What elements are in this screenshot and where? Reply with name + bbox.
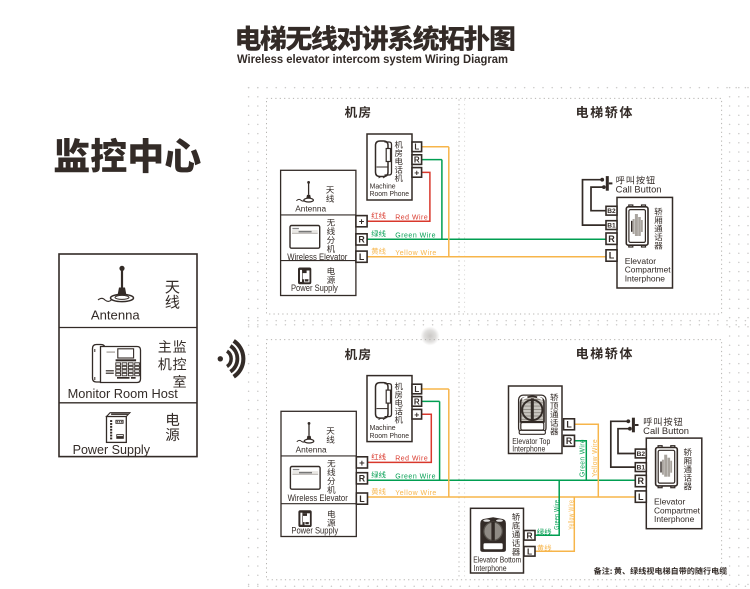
svg-text:Interphone: Interphone — [654, 514, 694, 524]
svg-text:L: L — [638, 492, 644, 502]
svg-text:B1: B1 — [607, 222, 616, 229]
svg-text:Interphone: Interphone — [625, 273, 665, 283]
svg-text:Yellow Wire: Yellow Wire — [395, 250, 437, 257]
svg-text:R: R — [359, 473, 366, 483]
svg-text:L: L — [359, 494, 365, 504]
svg-text:Red Wire: Red Wire — [395, 456, 428, 463]
svg-text:Interphone: Interphone — [474, 564, 507, 573]
svg-text:Green Wire: Green Wire — [580, 439, 587, 477]
svg-text:Wireless Elevator: Wireless Elevator — [288, 493, 348, 503]
svg-text:Green Wire: Green Wire — [395, 474, 436, 481]
svg-text:R: R — [566, 436, 573, 446]
svg-text:L: L — [609, 251, 615, 261]
svg-text:Yellow Wire: Yellow Wire — [395, 490, 437, 497]
svg-text:B2: B2 — [607, 208, 616, 215]
svg-text:+: + — [414, 409, 419, 419]
svg-text:R: R — [414, 397, 420, 406]
svg-text:R: R — [638, 476, 645, 486]
svg-text:Power Supply: Power Supply — [291, 283, 338, 293]
svg-text:Antenna: Antenna — [295, 203, 326, 213]
svg-text:Wireless elevator intercom sys: Wireless elevator intercom system Wiring… — [237, 54, 508, 66]
svg-text:Monitor Room Host: Monitor Room Host — [68, 386, 179, 401]
svg-text:L: L — [359, 252, 365, 262]
svg-text:Wireless Elevator: Wireless Elevator — [287, 252, 347, 262]
svg-text:R: R — [414, 155, 420, 164]
svg-text:Call Button: Call Button — [616, 185, 662, 195]
svg-text:Room Phone: Room Phone — [370, 431, 409, 440]
svg-text:Green Wire: Green Wire — [395, 232, 436, 239]
svg-text:+: + — [359, 217, 365, 228]
svg-text:+: + — [359, 458, 365, 469]
svg-text:Power Supply: Power Supply — [73, 442, 151, 457]
svg-text:Room Phone: Room Phone — [370, 189, 409, 198]
svg-text:Yellow Wire: Yellow Wire — [592, 439, 599, 477]
svg-text:Power Supply: Power Supply — [291, 526, 338, 536]
svg-text:Red Wire: Red Wire — [395, 214, 428, 221]
svg-text:R: R — [358, 235, 365, 245]
svg-text:Antenna: Antenna — [296, 444, 327, 454]
svg-text:R: R — [526, 530, 532, 540]
svg-text:Call Button: Call Button — [643, 426, 689, 436]
svg-text:B2: B2 — [637, 451, 646, 458]
svg-text:R: R — [608, 234, 615, 244]
svg-text:B1: B1 — [637, 464, 646, 471]
svg-text:Green Wire: Green Wire — [554, 500, 561, 530]
svg-text:+: + — [414, 167, 419, 177]
svg-text:Yellow Wire: Yellow Wire — [569, 500, 576, 530]
svg-text:L: L — [566, 419, 572, 429]
svg-text:Interphone: Interphone — [512, 445, 545, 454]
svg-text:L: L — [414, 385, 419, 394]
svg-text:Antenna: Antenna — [91, 308, 140, 323]
svg-text:L: L — [414, 143, 419, 152]
svg-text:L: L — [527, 546, 532, 556]
